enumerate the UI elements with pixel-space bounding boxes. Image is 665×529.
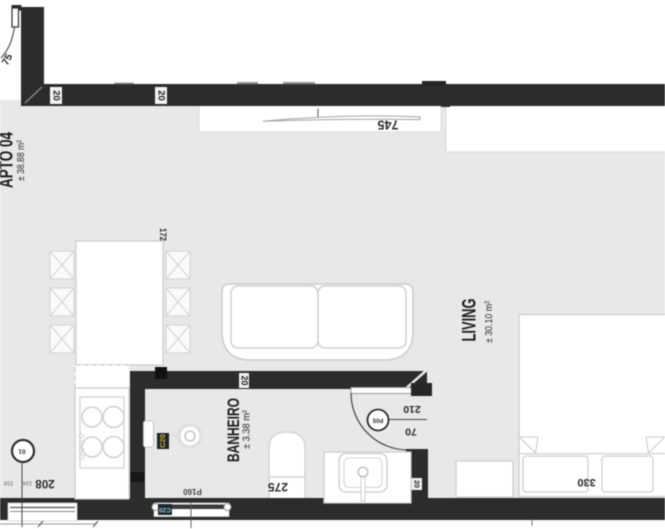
svg-text:20: 20 xyxy=(413,480,420,488)
svg-text:± 3.38 m²: ± 3.38 m² xyxy=(242,409,253,449)
svg-text:C20: C20 xyxy=(159,506,171,513)
svg-text:210: 210 xyxy=(403,403,421,415)
svg-text:124: 124 xyxy=(23,480,32,486)
svg-text:BANHEIRO: BANHEIRO xyxy=(224,398,243,462)
svg-text:70: 70 xyxy=(405,426,417,438)
svg-text:275: 275 xyxy=(268,480,288,494)
svg-text:C20: C20 xyxy=(158,434,167,448)
svg-text:330: 330 xyxy=(577,476,595,488)
svg-text:20: 20 xyxy=(240,375,250,385)
svg-text:LIVING: LIVING xyxy=(460,299,481,342)
svg-text:208: 208 xyxy=(35,477,55,489)
svg-text:APTO 04: APTO 04 xyxy=(0,132,18,188)
svg-text:P160: P160 xyxy=(183,487,202,496)
svg-text:P05: P05 xyxy=(372,416,383,422)
svg-text:01: 01 xyxy=(18,447,26,454)
svg-text:± 30.10 m²: ± 30.10 m² xyxy=(484,300,495,343)
svg-text:745: 745 xyxy=(378,118,399,132)
svg-text:± 38.88 m²: ± 38.88 m² xyxy=(16,139,27,181)
svg-text:20: 20 xyxy=(50,90,61,101)
svg-text:20: 20 xyxy=(155,90,166,101)
svg-text:210: 210 xyxy=(4,480,13,486)
svg-text:172: 172 xyxy=(158,228,168,241)
